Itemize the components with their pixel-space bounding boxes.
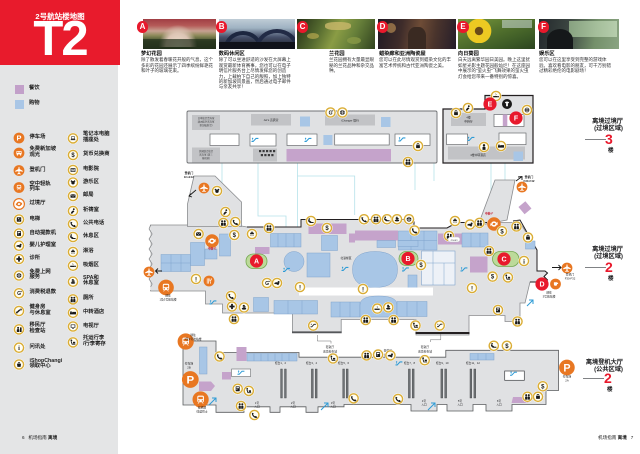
svg-text:中转厅: 中转厅 xyxy=(464,120,473,124)
svg-text:Jet's 贵宾室: Jet's 贵宾室 xyxy=(264,118,279,122)
svg-text:贵宾室 (第三: 贵宾室 (第三 xyxy=(199,153,213,157)
svg-text:3号航站楼: 3号航站楼 xyxy=(543,295,556,299)
svg-text:1号: 1号 xyxy=(255,401,259,405)
svg-text:离境检查站: 离境检查站 xyxy=(418,349,432,353)
svg-text:澳洲航空贵宾室: 澳洲航空贵宾室 xyxy=(198,120,215,124)
svg-text:E: E xyxy=(488,102,493,109)
svg-text:离境检查站: 离境检查站 xyxy=(323,349,337,353)
svg-text:2号: 2号 xyxy=(291,401,295,405)
svg-text:C: C xyxy=(501,257,506,264)
svg-text:柜台9、10: 柜台9、10 xyxy=(436,361,449,365)
svg-text:柜台3、4: 柜台3、4 xyxy=(306,361,318,365)
svg-text:中转 E: 中转 E xyxy=(208,246,217,251)
svg-text:入口: 入口 xyxy=(421,403,427,407)
svg-text:D: D xyxy=(539,282,544,289)
svg-text:F: F xyxy=(514,116,519,123)
svg-text:J-team: J-team xyxy=(450,239,457,242)
svg-text:柜台11、12: 柜台11、12 xyxy=(466,361,480,365)
svg-text:入口: 入口 xyxy=(254,405,260,409)
svg-text:日本航空贵宾室: 日本航空贵宾室 xyxy=(198,116,215,120)
svg-text:新加坡航空): 新加坡航空) xyxy=(200,123,213,127)
svg-text:柜台7、8: 柜台7、8 xyxy=(404,361,416,365)
svg-text:iChanger 银行: iChanger 银行 xyxy=(341,119,359,123)
svg-text:候机室): 候机室) xyxy=(202,156,210,160)
svg-text:往返巴士: 往返巴士 xyxy=(196,410,207,414)
svg-text:北滚梯区: 北滚梯区 xyxy=(340,256,351,260)
svg-text:入口: 入口 xyxy=(496,403,502,407)
svg-text:2B: 2B xyxy=(187,366,191,370)
svg-text:A: A xyxy=(254,259,259,266)
svg-text:5号: 5号 xyxy=(458,399,462,403)
svg-text:6号: 6号 xyxy=(497,399,501,403)
svg-text:4楼中转酒店: 4楼中转酒店 xyxy=(470,153,486,157)
svg-text:1及3号航站楼: 1及3号航站楼 xyxy=(159,298,176,302)
svg-text:B: B xyxy=(405,256,410,263)
svg-text:2A: 2A xyxy=(565,379,569,383)
svg-text:入口: 入口 xyxy=(290,405,296,409)
svg-text:1及3号航站楼: 1及3号航站楼 xyxy=(184,337,201,341)
svg-text:柜台5、6: 柜台5、6 xyxy=(338,361,350,365)
svg-text:3号: 3号 xyxy=(331,401,335,405)
svg-text:4号: 4号 xyxy=(422,399,426,403)
svg-text:E1-E12: E1-E12 xyxy=(184,175,194,179)
svg-text:中转 F: 中转 F xyxy=(485,211,494,216)
svg-text:F30-F32: F30-F32 xyxy=(565,277,576,281)
svg-text:柜台1、2: 柜台1、2 xyxy=(275,361,287,365)
svg-text:入口: 入口 xyxy=(457,403,463,407)
svg-text:入口: 入口 xyxy=(330,405,336,409)
svg-text:美国联合航空: 美国联合航空 xyxy=(199,149,214,153)
svg-text:F30-F42: F30-F42 xyxy=(524,179,535,183)
